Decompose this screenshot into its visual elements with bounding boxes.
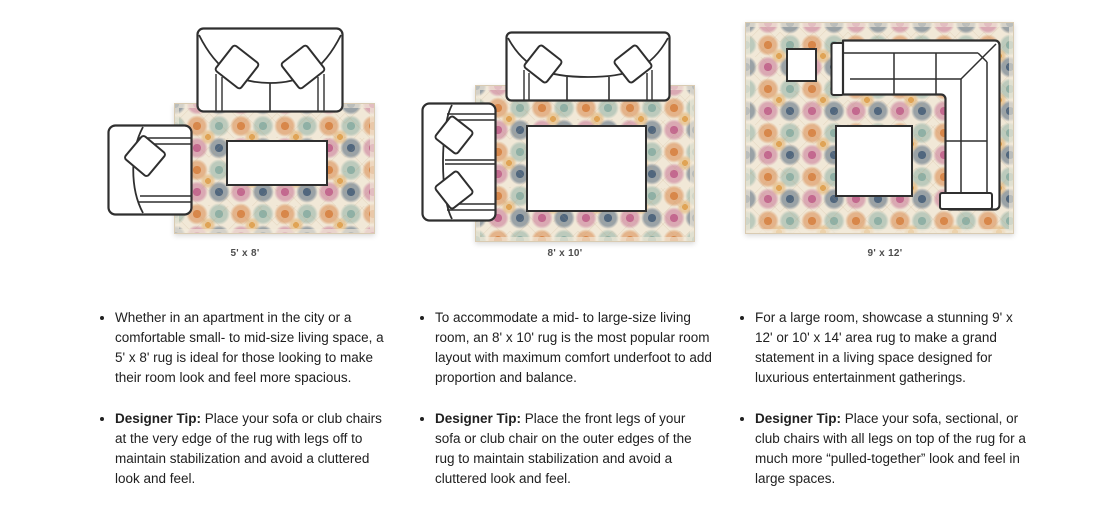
designer-tip: Designer Tip: Place the front legs of yo…	[435, 409, 713, 489]
sofa-icon	[505, 31, 671, 102]
notes-9x12: For a large room, showcase a stunning 9'…	[735, 308, 1035, 489]
sofa-icon	[196, 27, 344, 113]
designer-tip-label: Designer Tip:	[435, 411, 521, 426]
size-section-5x8: 5' x 8' Whether in an apartment in the c…	[95, 0, 395, 509]
size-label-8x10: 8' x 10'	[415, 248, 715, 262]
rug-size-guide: 5' x 8' Whether in an apartment in the c…	[0, 0, 1120, 509]
loveseat-icon	[421, 102, 497, 222]
rug-size-description: Whether in an apartment in the city or a…	[115, 308, 393, 388]
coffee-table	[226, 140, 328, 186]
club-chair-icon	[107, 124, 193, 216]
side-table	[786, 48, 817, 82]
notes-5x8: Whether in an apartment in the city or a…	[95, 308, 395, 489]
size-section-8x10: 8' x 10' To accommodate a mid- to large-…	[415, 0, 715, 509]
designer-tip-label: Designer Tip:	[115, 411, 201, 426]
size-label-5x8: 5' x 8'	[95, 248, 395, 262]
room-diagram-8x10	[415, 0, 715, 235]
coffee-table	[526, 125, 647, 212]
room-diagram-9x12	[735, 0, 1035, 235]
size-columns: 5' x 8' Whether in an apartment in the c…	[0, 0, 1120, 509]
rug-size-description: For a large room, showcase a stunning 9'…	[755, 308, 1033, 388]
room-diagram-5x8	[95, 0, 395, 235]
size-label-9x12: 9' x 12'	[735, 248, 1035, 262]
designer-tip: Designer Tip: Place your sofa, sectional…	[755, 409, 1033, 489]
designer-tip: Designer Tip: Place your sofa or club ch…	[115, 409, 393, 489]
size-section-9x12: 9' x 12' For a large room, showcase a st…	[735, 0, 1035, 509]
sectional-sofa-icon	[830, 38, 1001, 212]
designer-tip-label: Designer Tip:	[755, 411, 841, 426]
rug-size-description: To accommodate a mid- to large-size livi…	[435, 308, 713, 388]
notes-8x10: To accommodate a mid- to large-size livi…	[415, 308, 715, 489]
